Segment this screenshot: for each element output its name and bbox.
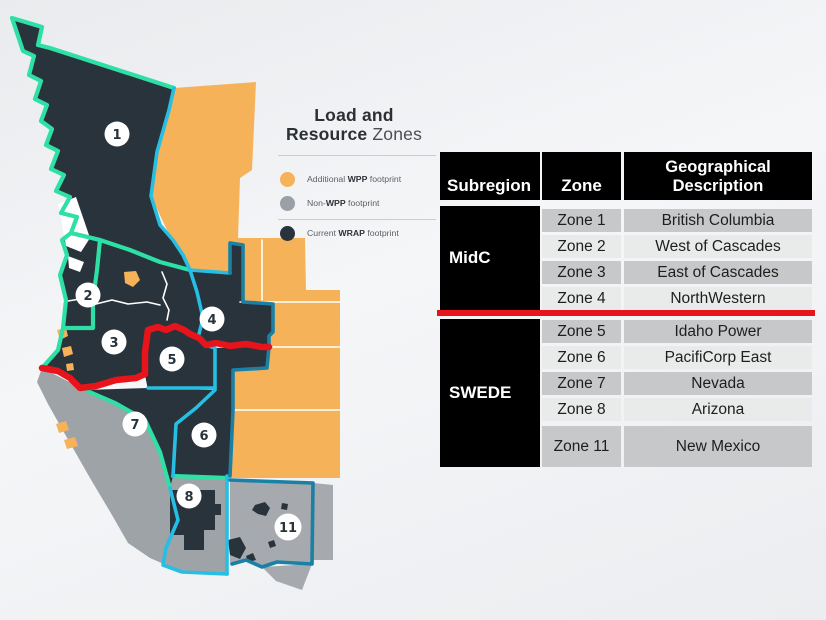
description-cell: East of Cascades: [624, 261, 812, 284]
legend-title-line2-bold: Resource: [286, 124, 367, 144]
region-texas-panhandle-gray: [313, 483, 333, 560]
description-cell: Nevada: [624, 372, 812, 395]
legend-title: Load and Resource Zones: [268, 106, 440, 144]
description-cell: West of Cascades: [624, 235, 812, 258]
subregion-cell-midc: MidC: [440, 206, 540, 310]
zone-marker-5: 5: [160, 347, 185, 372]
svg-text:2: 2: [83, 289, 92, 304]
zone-marker-11: 11: [275, 514, 302, 541]
legend-divider-top: [278, 155, 436, 156]
zone-cell: Zone 6: [542, 346, 621, 369]
zone-cell: Zone 3: [542, 261, 621, 284]
svg-text:5: 5: [167, 353, 176, 368]
zone-marker-8: 8: [177, 484, 202, 509]
region-texas-gray: [262, 564, 312, 590]
zone-cell: Zone 1: [542, 209, 621, 232]
zone-marker-7: 7: [123, 412, 148, 437]
zone-marker-2: 2: [76, 283, 101, 308]
zone-cell: Zone 2: [542, 235, 621, 258]
table-header-geographical-description: Geographical Description: [624, 152, 812, 200]
zone-marker-1: 1: [105, 122, 130, 147]
orange-dot-icon: [280, 172, 295, 187]
legend-item-current-wrap: Current WRAP footprint: [280, 225, 399, 241]
description-cell: NorthWestern: [624, 287, 812, 310]
zone-cell: Zone 5: [542, 320, 621, 343]
description-cell: PacifiCorp East: [624, 346, 812, 369]
description-cell: New Mexico: [624, 426, 812, 467]
zone-marker-3: 3: [102, 330, 127, 355]
western-interconnection-map: 1 2 3 4 5 6 7 8: [0, 0, 460, 620]
zone-cell: Zone 11: [542, 426, 621, 467]
legend-title-line2-light: Zones: [372, 124, 422, 144]
svg-text:4: 4: [207, 313, 216, 328]
dark-dot-icon: [280, 226, 295, 241]
zone-cell: Zone 4: [542, 287, 621, 310]
legend-title-line1: Load and: [314, 105, 393, 125]
subregion-cell-swede: SWEDE: [440, 319, 540, 467]
description-cell: British Columbia: [624, 209, 812, 232]
table-header-zone: Zone: [542, 152, 621, 200]
load-resource-zones-infographic: 1 2 3 4 5 6 7 8: [0, 0, 826, 620]
legend-item-label: Additional WPP footprint: [307, 174, 401, 184]
svg-text:1: 1: [112, 128, 121, 143]
description-cell: Idaho Power: [624, 320, 812, 343]
zone-marker-4: 4: [200, 307, 225, 332]
gray-dot-icon: [280, 196, 295, 211]
legend-item-label: Current WRAP footprint: [307, 228, 399, 238]
zone-cell: Zone 7: [542, 372, 621, 395]
legend-divider-bottom: [278, 219, 436, 220]
svg-text:7: 7: [130, 418, 139, 433]
table-midc-swede-divider: [437, 310, 815, 316]
legend-item-additional-wpp: Additional WPP footprint: [280, 171, 401, 187]
svg-text:3: 3: [109, 336, 118, 351]
zone-cell: Zone 8: [542, 398, 621, 421]
description-cell: Arizona: [624, 398, 812, 421]
svg-text:6: 6: [199, 429, 208, 444]
zone-marker-6: 6: [192, 423, 217, 448]
legend-item-non-wpp: Non-WPP footprint: [280, 195, 379, 211]
svg-text:8: 8: [184, 490, 193, 505]
legend-item-label: Non-WPP footprint: [307, 198, 379, 208]
table-header-subregion: Subregion: [440, 152, 540, 200]
svg-text:11: 11: [279, 521, 297, 536]
